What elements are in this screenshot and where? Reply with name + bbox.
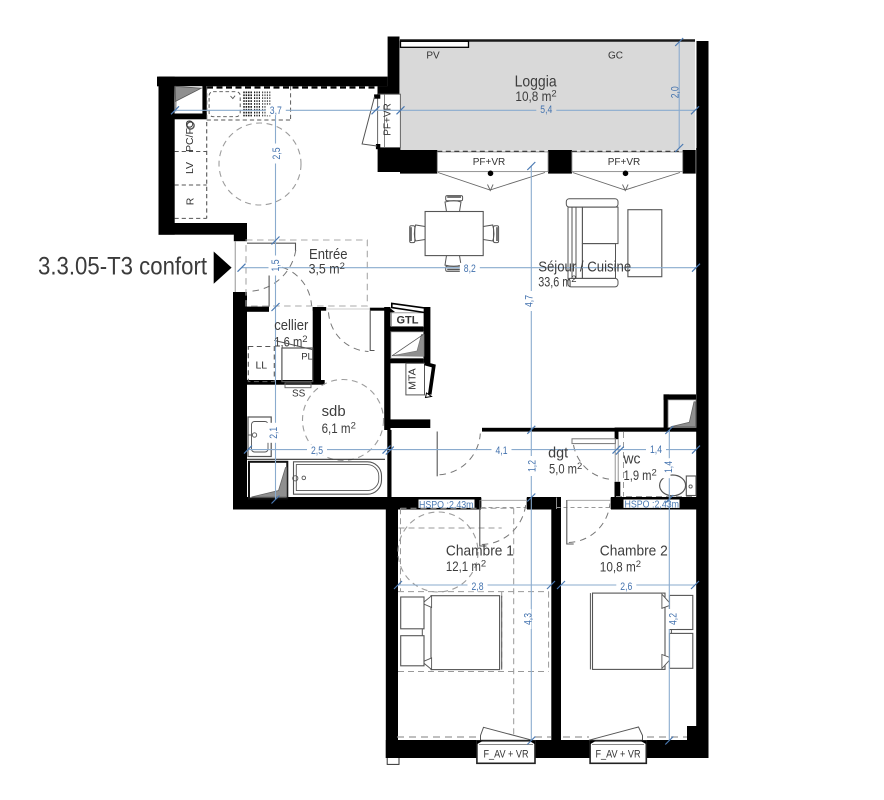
- svg-text:12,1 m2: 12,1 m2: [446, 558, 486, 574]
- svg-text:10,8 m2: 10,8 m2: [515, 88, 556, 104]
- svg-text:33,6 m2: 33,6 m2: [538, 274, 576, 290]
- svg-text:PC/FO: PC/FO: [184, 120, 196, 152]
- svg-text:2,5: 2,5: [311, 445, 323, 457]
- svg-text:F_AV + VR: F_AV + VR: [596, 749, 641, 761]
- svg-text:sdb: sdb: [322, 403, 346, 420]
- svg-text:2,6: 2,6: [620, 581, 632, 593]
- svg-text:2,5: 2,5: [271, 148, 283, 160]
- svg-text:PV: PV: [426, 51, 440, 62]
- svg-text:4,1: 4,1: [496, 445, 508, 457]
- svg-text:1,5: 1,5: [270, 260, 282, 272]
- svg-text:Chambre 2: Chambre 2: [600, 543, 668, 560]
- svg-text:1,4: 1,4: [663, 461, 675, 473]
- svg-text:PF+VR: PF+VR: [608, 157, 641, 168]
- svg-text:1,9 m2: 1,9 m2: [624, 467, 657, 483]
- svg-text:4,2: 4,2: [668, 613, 680, 625]
- svg-text:HSPO :2,43m: HSPO :2,43m: [625, 499, 680, 510]
- svg-text:cellier: cellier: [274, 317, 308, 334]
- svg-text:3,5 m2: 3,5 m2: [309, 261, 345, 277]
- svg-text:GC: GC: [608, 51, 623, 62]
- svg-text:LV: LV: [184, 162, 196, 174]
- svg-text:2,8: 2,8: [472, 581, 484, 593]
- svg-text:6,1 m2: 6,1 m2: [322, 420, 356, 436]
- svg-text:4,3: 4,3: [522, 613, 534, 625]
- svg-text:3,7: 3,7: [270, 105, 282, 117]
- svg-text:Chambre 1: Chambre 1: [446, 543, 514, 560]
- svg-text:1,2: 1,2: [526, 460, 538, 472]
- svg-text:4,7: 4,7: [523, 295, 535, 307]
- svg-text:5,0 m2: 5,0 m2: [549, 461, 582, 477]
- svg-text:R: R: [185, 197, 197, 205]
- svg-text:2,0: 2,0: [670, 86, 682, 98]
- svg-text:PL: PL: [301, 352, 313, 363]
- svg-text:5,4: 5,4: [540, 104, 552, 116]
- svg-text:F_AV + VR: F_AV + VR: [484, 749, 529, 761]
- svg-text:LL: LL: [255, 360, 267, 372]
- svg-text:dgt: dgt: [548, 445, 569, 462]
- svg-text:PF+VR: PF+VR: [383, 103, 394, 136]
- svg-text:wc: wc: [623, 451, 641, 468]
- svg-text:10,8 m2: 10,8 m2: [600, 559, 641, 575]
- svg-text:HSPO :2,43m: HSPO :2,43m: [419, 500, 474, 511]
- svg-text:8,2: 8,2: [464, 263, 476, 275]
- svg-text:2,1: 2,1: [268, 427, 280, 439]
- svg-text:1,4: 1,4: [650, 444, 662, 456]
- svg-text:3.3.05-T3 confort: 3.3.05-T3 confort: [38, 253, 207, 281]
- svg-text:MTA: MTA: [407, 368, 419, 389]
- svg-text:SS: SS: [292, 389, 306, 400]
- svg-text:GTL: GTL: [397, 315, 419, 327]
- svg-text:PF+VR: PF+VR: [473, 157, 506, 168]
